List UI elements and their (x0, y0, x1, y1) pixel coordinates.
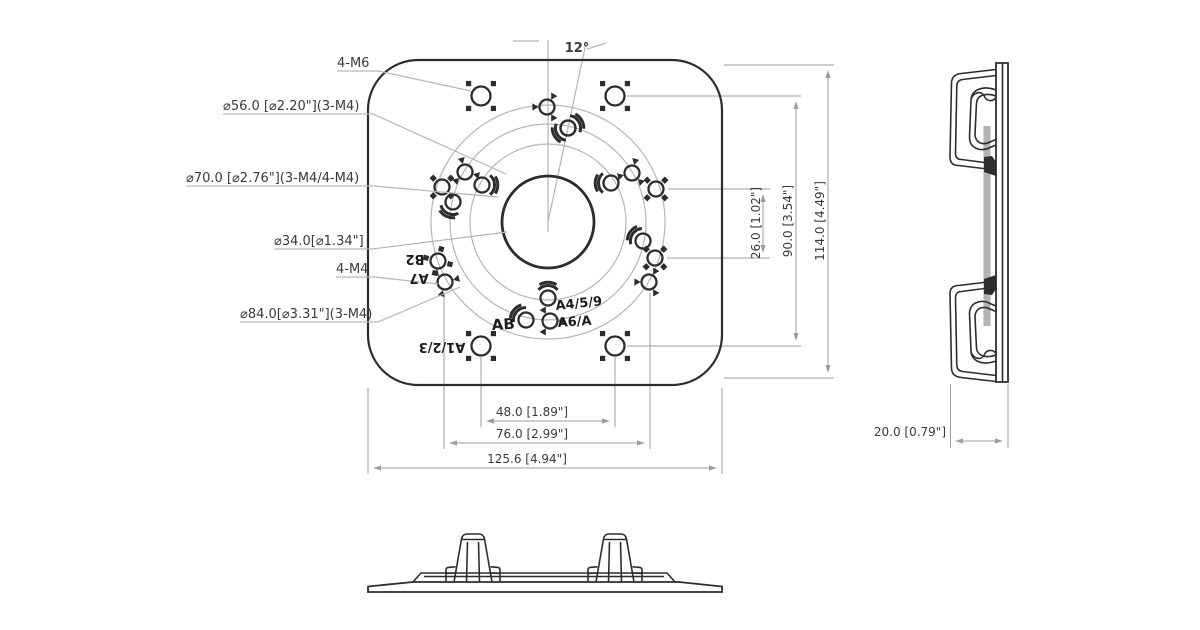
mounting-post-right (588, 534, 642, 582)
engraving-a7: A7 (409, 270, 428, 285)
dim-height-outer: 114.0 [4.49"] (813, 181, 827, 261)
side-bracket-top (950, 70, 996, 177)
side-view: 20.0 [0.79"] (874, 63, 1008, 448)
drawing-page: 4-M6 ⌀56.0 [⌀2.20"](3-M4) ⌀70.0 [⌀2.76"]… (0, 0, 1200, 630)
hole-pattern-m6 (466, 331, 496, 361)
engraving-b2: B2 (406, 251, 425, 266)
engraving-a6a: A6/A (557, 314, 592, 331)
side-bracket-bottom (950, 275, 996, 382)
dim-height-inner: 26.0 [1.02"] (749, 187, 763, 259)
callout-d84: ⌀84.0[⌀3.31"](3-M4) (240, 307, 372, 322)
dim-width-mid: 76.0 [2.99"] (496, 427, 568, 441)
front-view: 4-M6 ⌀56.0 [⌀2.20"](3-M4) ⌀70.0 [⌀2.76"]… (186, 40, 834, 474)
callout-d70: ⌀70.0 [⌀2.76"](3-M4/4-M4) (186, 171, 359, 186)
leader-line-m6 (337, 71, 471, 91)
base-plate-profile (368, 582, 722, 592)
callout-d34: ⌀34.0[⌀1.34"] (274, 234, 364, 249)
hole-pattern-arc (475, 175, 498, 194)
dim-depth: 20.0 [0.79"] (874, 425, 946, 439)
side-plate-edge-shading (984, 126, 990, 326)
hole-pattern-m6 (600, 331, 630, 361)
callout-4-m4: 4-M4 (336, 262, 368, 277)
dim-width-outer: 125.6 [4.94"] (487, 452, 567, 466)
hole-pattern-arc (625, 224, 655, 253)
angle-tick-right (587, 43, 606, 49)
hole-pattern-arc (550, 116, 580, 144)
plate-outline (368, 60, 722, 385)
callout-4-m6: 4-M6 (337, 56, 369, 71)
engraving-a459: A4/5/9 (555, 294, 603, 314)
dim-height-mid: 90.0 [3.54"] (781, 185, 795, 257)
engraving-ab: AB (491, 315, 515, 334)
technical-drawing-canvas: 4-M6 ⌀56.0 [⌀2.20"](3-M4) ⌀70.0 [⌀2.76"]… (0, 0, 1200, 630)
dim-width-inner: 48.0 [1.89"] (496, 405, 568, 419)
hole-pattern-triad (615, 155, 649, 187)
mounting-post-left (446, 534, 500, 582)
engraving-a123: A1/2/3 (419, 339, 466, 354)
callout-d56: ⌀56.0 [⌀2.20"](3-M4) (223, 99, 359, 114)
raised-platform-profile (413, 573, 675, 582)
hole-pattern-m6 (466, 81, 496, 111)
bottom-view (368, 534, 722, 592)
hole-pattern-m6 (600, 81, 630, 111)
angle-label: 12° (565, 41, 590, 56)
